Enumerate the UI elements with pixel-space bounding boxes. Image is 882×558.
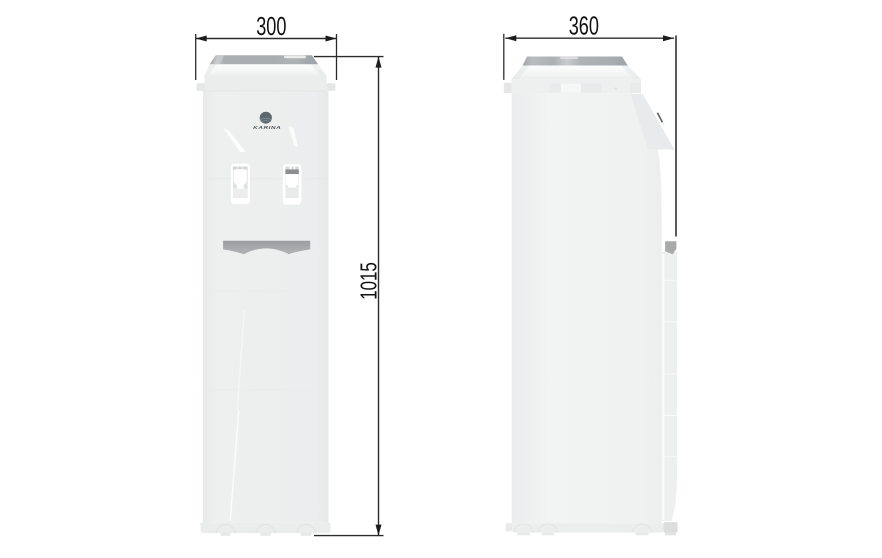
svg-text:KARINA: KARINA <box>253 126 281 131</box>
svg-text:360: 360 <box>569 11 599 40</box>
svg-text:300: 300 <box>256 12 286 41</box>
svg-text:1015: 1015 <box>356 262 382 300</box>
